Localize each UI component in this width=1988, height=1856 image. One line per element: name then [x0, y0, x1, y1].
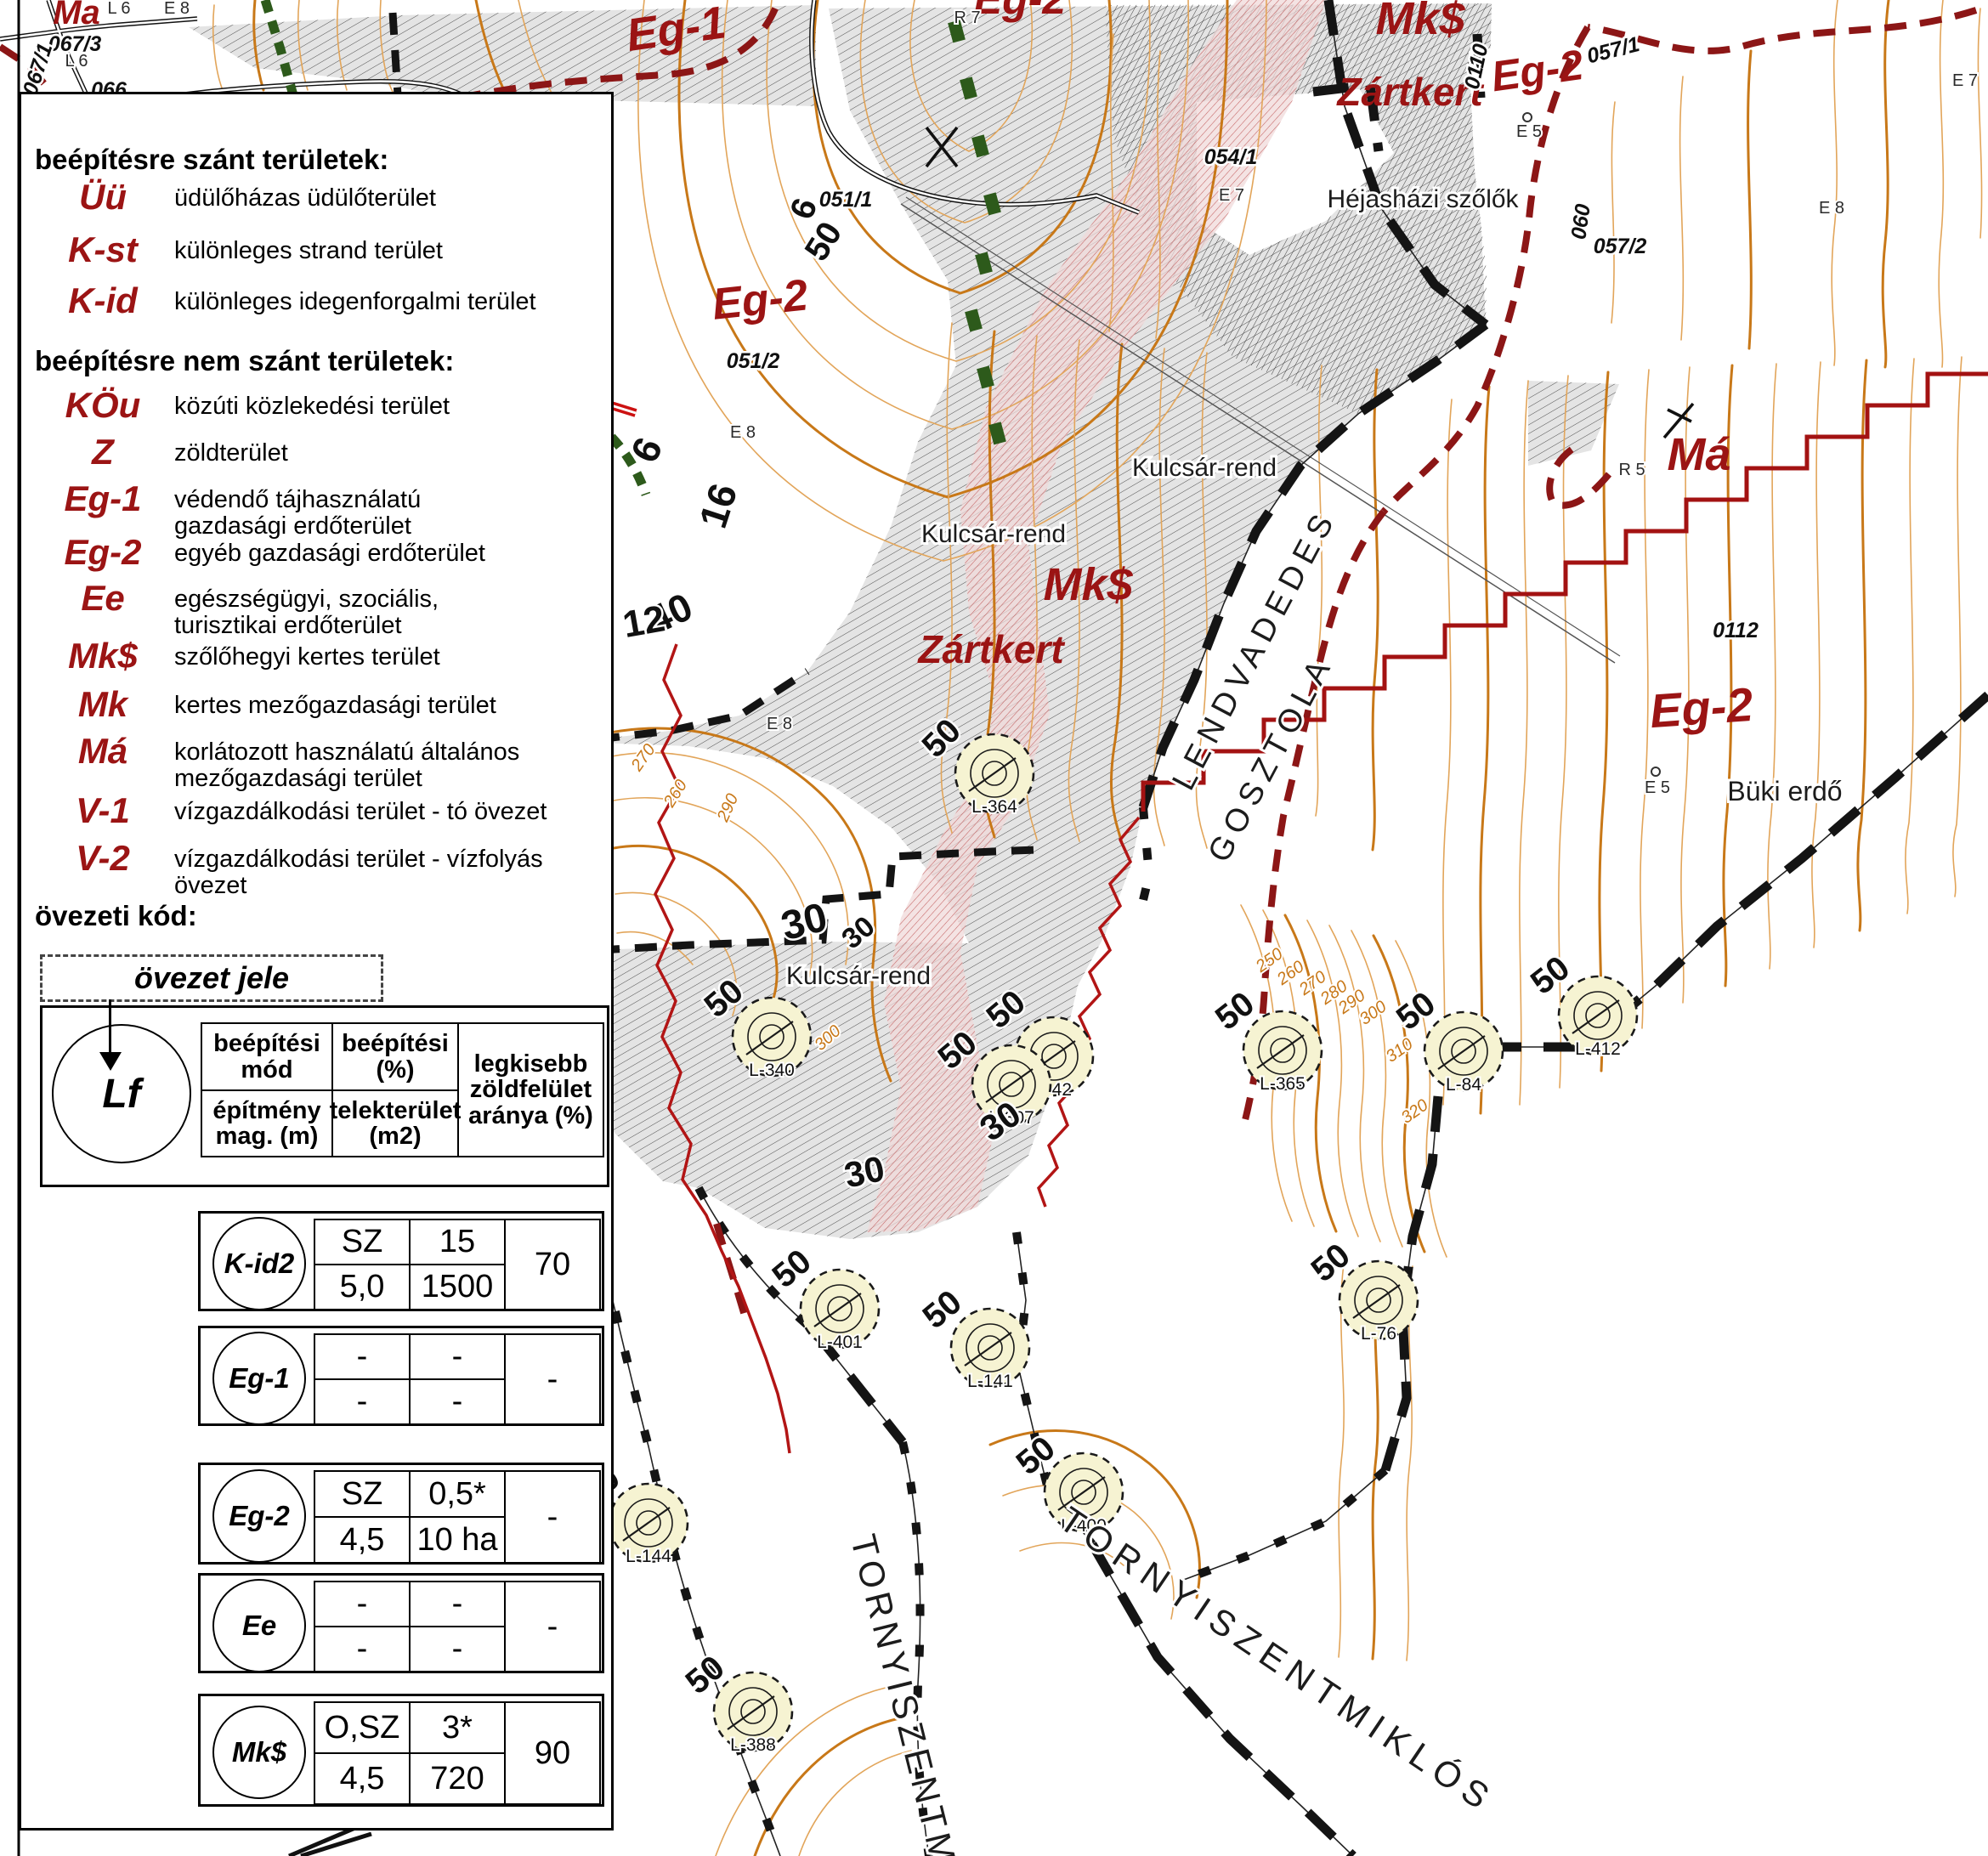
map-label-tag: E 7 [1952, 71, 1978, 90]
zone-desc: üdülőházas üdülőterület [174, 179, 436, 212]
zt-cell: - [411, 1335, 504, 1378]
zt-cell: 3* [411, 1703, 504, 1752]
map-label-parcel: 057/2 [1594, 235, 1647, 258]
zone-code: Üü [31, 179, 174, 215]
zone-desc: kertes mezőgazdasági terület [174, 687, 496, 719]
matrix-header: legkisebb zöldfelület aránya (%) [459, 1024, 603, 1156]
map-label-zone: Eg-2 [1648, 677, 1754, 738]
matrix-header: beépítési mód [202, 1024, 331, 1089]
map-label-zone: Eg-2 [710, 270, 810, 329]
zone-desc: egyéb gazdasági erdőterület [174, 535, 485, 567]
protection-circle-label: L-364 [971, 797, 1017, 817]
map-label-place: Kulcsár-rend [1132, 454, 1277, 482]
protection-circle-label: L-84 [1446, 1075, 1481, 1095]
map-label-parcel: 051/1 [819, 188, 873, 212]
map-label-zone: Mk$ [1043, 559, 1133, 610]
legend-item-kid: K-id különleges idegenforgalmi terület [31, 283, 604, 319]
map-label-zone: Mk$ [1375, 0, 1465, 44]
zone-desc: szőlőhegyi kertes terület [174, 638, 440, 671]
zt-cell: 4,5 [315, 1518, 409, 1562]
zt-cell: 1500 [411, 1265, 504, 1309]
legend-item-kst: K-st különleges strand terület [31, 232, 604, 268]
map-label-tag: E 5 [1645, 778, 1670, 797]
zone-sign-box: övezet jele [40, 954, 383, 1002]
map-label-tag: E 8 [730, 423, 756, 442]
zt-cell: 70 [506, 1220, 599, 1309]
zt-cell: SZ [315, 1472, 409, 1516]
map-label-place: Kulcsár-rend [921, 520, 1066, 548]
zone-code: K-id [31, 283, 174, 319]
zone-desc: közúti közlekedési terület [174, 388, 450, 420]
legend-item-mks: Mk$ szőlőhegyi kertes terület [31, 638, 604, 674]
parameter-matrix: beépítési mód beépítési (%) legkisebb zö… [201, 1022, 604, 1157]
legend-item-v1: V-1 vízgazdálkodási terület - tó övezet [31, 793, 604, 829]
zone-table-code: Mk$ [212, 1706, 306, 1799]
map-label-tag: R 5 [1618, 461, 1645, 479]
zone-table-eg1: Eg-1 - - - - - [198, 1326, 604, 1426]
legend-item-ma: Má korlátozott használatú általános mező… [31, 733, 604, 793]
zone-symbol: Lf [102, 1071, 140, 1118]
map-label-num: 12 [620, 597, 668, 646]
protection-circle-label: L-412 [1575, 1039, 1621, 1059]
zone-desc: különleges strand terület [174, 232, 443, 264]
zone-code: K-st [31, 232, 174, 268]
zone-code: Mk [31, 687, 174, 722]
legend-item-ee: Ee egészségügyi, szociális, turisztikai … [31, 580, 604, 640]
map-label-tag: E 7 [1219, 186, 1244, 205]
legend-item-v2: V-2 vízgazdálkodási terület - vízfolyás … [31, 840, 604, 900]
zt-cell: 90 [506, 1703, 599, 1803]
zone-desc: egészségügyi, szociális, turisztikai erd… [174, 580, 439, 640]
map-label-tag: L 6 [65, 52, 88, 71]
zone-code: Z [31, 434, 174, 470]
zone-table-ee: Ee - - - - - [198, 1573, 604, 1673]
zt-cell: - [315, 1380, 409, 1423]
protection-circle-label: L-340 [749, 1061, 795, 1080]
map-label-parcel: 051/2 [727, 349, 780, 373]
map-label-tag: L 6 [107, 0, 130, 18]
map-label-tag: E 8 [164, 0, 190, 18]
zone-table-kid2: K-id2 SZ 15 70 5,0 1500 [198, 1211, 604, 1311]
legend-panel: beépítésre szánt területek: Üü üdülőháza… [19, 92, 614, 1831]
map-label-num: 30 [841, 1148, 887, 1196]
zt-cell: - [506, 1472, 599, 1562]
zone-code: Eg-2 [31, 535, 174, 570]
protection-circle-label: L-141 [967, 1372, 1013, 1391]
protection-circle-label: L-388 [730, 1735, 776, 1755]
legend-item-mk: Mk kertes mezőgazdasági terület [31, 687, 604, 722]
map-label-tag: R 7 [954, 8, 980, 27]
map-label-parcel: 054/1 [1204, 145, 1258, 169]
map-label-tag: E 8 [767, 715, 792, 733]
zt-cell: - [411, 1582, 504, 1626]
zone-code: Mk$ [31, 638, 174, 674]
legend-built-header: beépítésre szánt területek: [35, 144, 388, 176]
map-label-place: Büki erdő [1727, 776, 1842, 806]
zt-cell: O,SZ [315, 1703, 409, 1752]
zt-cell: - [315, 1627, 409, 1671]
legend-item-z: Z zöldterület [31, 434, 604, 470]
zt-cell: 15 [411, 1220, 504, 1264]
map-label-place: Héjasházi szőlők [1327, 185, 1519, 213]
zt-cell: - [411, 1627, 504, 1671]
zone-symbol-circle: Lf [52, 1024, 191, 1163]
protection-circle-label: L-365 [1260, 1074, 1306, 1094]
zone-code: V-1 [31, 793, 174, 829]
zt-cell: - [315, 1582, 409, 1626]
protection-circle-label: L-76 [1361, 1324, 1396, 1344]
zone-desc: korlátozott használatú általános mezőgaz… [174, 733, 519, 793]
zt-cell: 720 [411, 1754, 504, 1803]
matrix-header: telekterület (m2) [333, 1091, 457, 1156]
map-label-zone: Ma [53, 0, 100, 31]
protection-circle-label: L-401 [817, 1333, 863, 1352]
map-label-parcel: 060 [1566, 202, 1595, 240]
matrix-header: beépítési (%) [333, 1024, 457, 1089]
map-label-parcel: 0112 [1713, 619, 1759, 642]
legend-unbuilt-header: beépítésre nem szánt területek: [35, 345, 454, 377]
zone-table-code: Eg-1 [212, 1332, 306, 1425]
zone-sign-label: övezet jele [134, 960, 289, 996]
zt-cell: SZ [315, 1220, 409, 1264]
map-label-zone: Zártkert [916, 627, 1065, 671]
zone-table-eg2: Eg-2 SZ 0,5* - 4,5 10 ha [198, 1463, 604, 1565]
zt-cell: - [315, 1335, 409, 1378]
zone-code: V-2 [31, 840, 174, 876]
zone-table-code: K-id2 [212, 1217, 306, 1310]
map-label-zone: Má [1667, 429, 1730, 480]
map-label-tag: E 8 [1819, 199, 1844, 218]
zone-desc: vízgazdálkodási terület - tó övezet [174, 793, 547, 825]
map-label-place: Kulcsár-rend [786, 962, 931, 990]
zone-desc: vízgazdálkodási terület - vízfolyás övez… [174, 840, 604, 900]
zone-code-title: övezeti kód: [35, 900, 197, 932]
zt-cell: - [506, 1582, 599, 1671]
legend-item-uu: Üü üdülőházas üdülőterület [31, 179, 604, 215]
zt-cell: 10 ha [411, 1518, 504, 1562]
zt-cell: - [506, 1335, 599, 1423]
zt-cell: 5,0 [315, 1265, 409, 1309]
protection-circle-label: L-144 [626, 1547, 671, 1566]
zone-desc: különleges idegenforgalmi terület [174, 283, 536, 315]
zt-cell: - [411, 1380, 504, 1423]
zone-code: KÖu [31, 388, 174, 423]
map-label-tag: E 5 [1516, 122, 1542, 141]
zone-table-code: Eg-2 [212, 1469, 306, 1563]
zone-desc: védendő tájhasználatú gazdasági erdőterü… [174, 481, 421, 540]
legend-item-eg2: Eg-2 egyéb gazdasági erdőterület [31, 535, 604, 570]
map-label-zone: Eg-2 [974, 0, 1067, 23]
zone-table-code: Ee [212, 1579, 306, 1672]
zt-cell: 0,5* [411, 1472, 504, 1516]
zt-cell: 4,5 [315, 1754, 409, 1803]
matrix-header: építmény mag. (m) [202, 1091, 331, 1156]
zone-desc: zöldterület [174, 434, 288, 467]
zone-code: Eg-1 [31, 481, 174, 517]
legend-item-kou: KÖu közúti közlekedési terület [31, 388, 604, 423]
zone-table-mks: Mk$ O,SZ 3* 90 4,5 720 [198, 1694, 604, 1807]
zone-code: Má [31, 733, 174, 769]
zone-code: Ee [31, 580, 174, 616]
